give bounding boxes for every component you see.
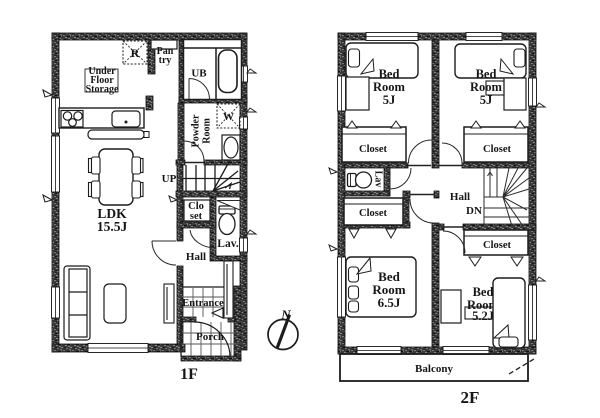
svg-text:5J: 5J: [383, 93, 396, 107]
svg-text:UP: UP: [162, 173, 177, 185]
svg-text:Closet: Closet: [359, 144, 387, 155]
svg-text:5.2J: 5.2J: [472, 309, 494, 323]
svg-text:set: set: [190, 211, 203, 222]
svg-text:Closet: Closet: [359, 208, 387, 219]
svg-text:N: N: [280, 307, 291, 322]
svg-text:Bed: Bed: [476, 67, 497, 81]
svg-text:Lav.: Lav.: [217, 238, 239, 250]
svg-text:5J: 5J: [480, 93, 493, 107]
svg-text:DN: DN: [466, 205, 482, 217]
svg-text:Closet: Closet: [483, 144, 511, 155]
svg-text:Room: Room: [470, 80, 503, 94]
svg-text:Hall: Hall: [186, 251, 206, 263]
svg-text:15.5J: 15.5J: [97, 219, 128, 234]
svg-text:Storage: Storage: [86, 84, 119, 95]
svg-text:Bed: Bed: [473, 285, 494, 299]
svg-text:6.5J: 6.5J: [378, 295, 401, 310]
svg-text:W: W: [223, 111, 234, 123]
svg-text:Porch: Porch: [196, 331, 224, 343]
svg-text:Balcony: Balcony: [415, 363, 453, 375]
svg-text:UB: UB: [191, 68, 207, 80]
svg-text:1F: 1F: [180, 366, 198, 383]
svg-text:Lav: Lav: [373, 171, 384, 188]
svg-text:Bed: Bed: [379, 67, 400, 81]
svg-text:Closet: Closet: [483, 240, 511, 251]
svg-text:Room: Room: [202, 118, 213, 144]
svg-text:try: try: [159, 55, 172, 66]
svg-text:Room: Room: [373, 80, 406, 94]
svg-text:Hall: Hall: [450, 191, 470, 203]
svg-text:R: R: [131, 46, 140, 60]
svg-text:Entrance: Entrance: [182, 298, 224, 309]
svg-text:2F: 2F: [461, 388, 480, 407]
